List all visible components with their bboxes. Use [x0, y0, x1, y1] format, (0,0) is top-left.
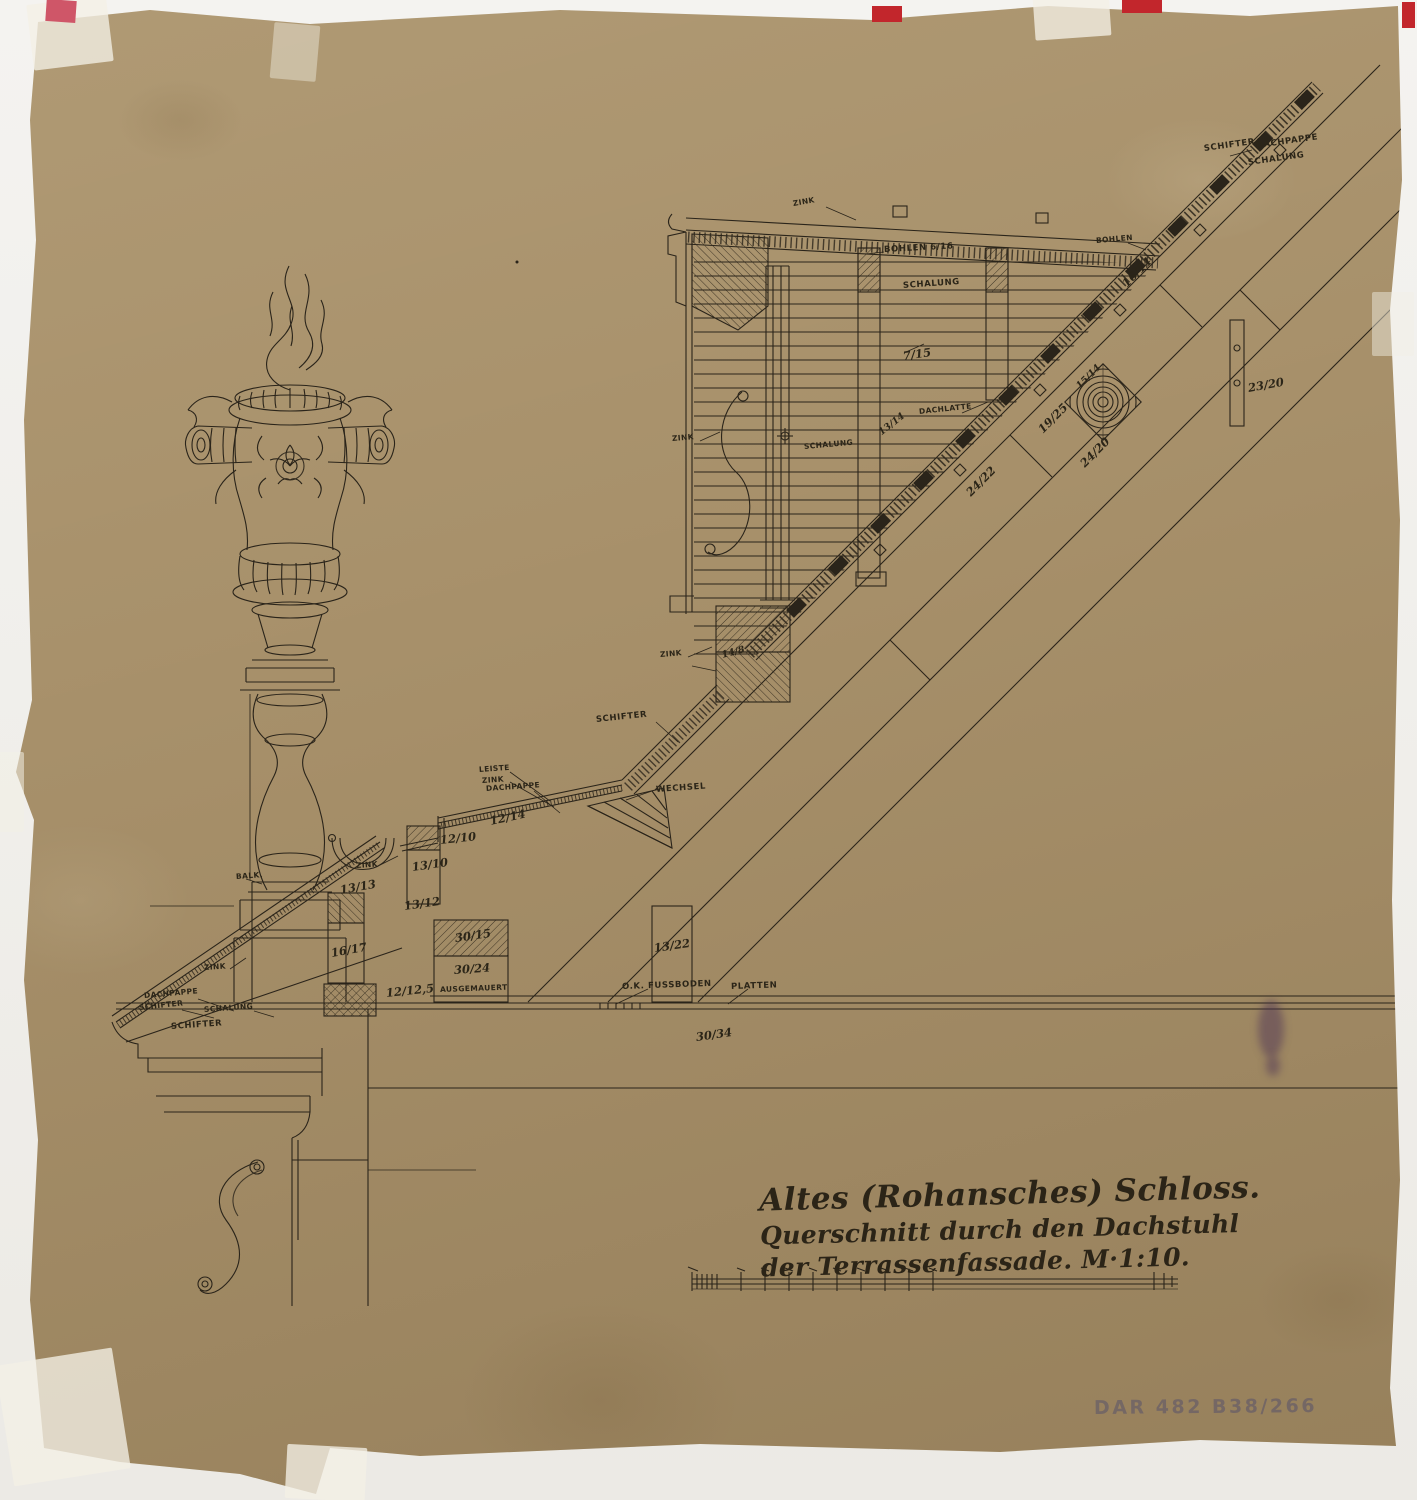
drawing-sheet: SCHIFTER DACHPAPPE SCHALUNG ZINK BOHLEN …: [0, 0, 1417, 1500]
tape-piece-bottom-left: [0, 1348, 131, 1487]
registration-mark-center: [872, 6, 902, 22]
annotation-zink-step: ZINK: [356, 859, 378, 870]
ink-smudge: [1258, 1000, 1284, 1058]
annotation-dim-30-24: 30/24: [454, 960, 491, 976]
annotation-zink-window: ZINK: [672, 432, 695, 443]
tape-piece-bottom: [285, 1444, 368, 1500]
photograph-backdrop: SCHIFTER DACHPAPPE SCHALUNG ZINK BOHLEN …: [0, 0, 1417, 1500]
annotation-balk: BALK.: [236, 870, 264, 881]
annotation-zink-sill: ZINK: [660, 648, 683, 659]
tape-piece-left: [0, 752, 24, 832]
registration-mark-corner: [1402, 2, 1415, 28]
balustrade-finial: [150, 261, 519, 1003]
title-block: Altes (Rohansches) Schloss. Querschnitt …: [759, 1169, 1263, 1282]
ink-smudge-small: [1266, 1056, 1280, 1076]
tape-piece-top: [270, 22, 321, 82]
annotation-zink-eave: ZINK: [204, 961, 226, 972]
annotation-platten: PLATTEN: [731, 980, 778, 992]
registration-mark-right: [1122, 0, 1162, 13]
registration-mark-left: [45, 0, 76, 23]
architectural-section-drawing: [0, 0, 1417, 1500]
archive-stamp: DAR 482 B38/266: [1094, 1395, 1317, 1419]
roof-rafter-lines: [528, 65, 1417, 1002]
tape-piece-right: [1372, 292, 1414, 356]
tape-piece-top-right: [1033, 0, 1112, 41]
